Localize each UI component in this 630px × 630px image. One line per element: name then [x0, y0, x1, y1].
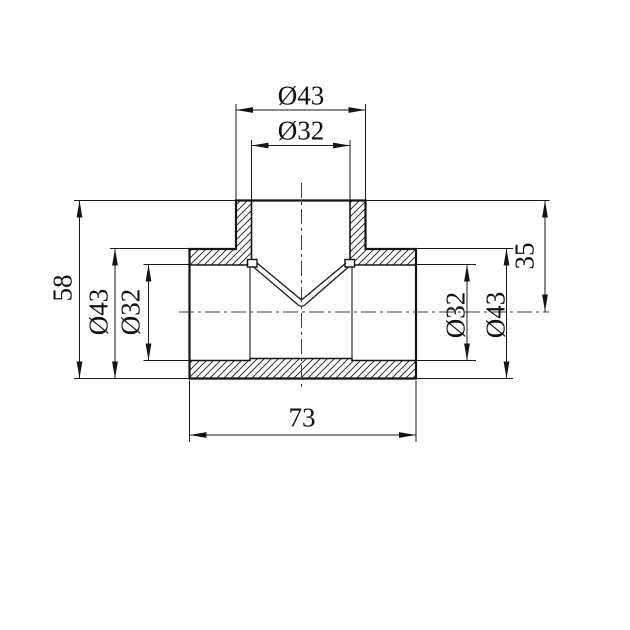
hatch-right-wall [350, 201, 416, 266]
dim-right-outer-diameter: Ø43 [481, 249, 511, 379]
dim-top-inner-diameter: Ø32 [252, 116, 351, 146]
tee-fitting-section-drawing: Ø43 Ø32 58 Ø43 Ø32 Ø32 Ø43 35 73 [0, 0, 630, 630]
right-notch [345, 260, 355, 268]
hatch-left-wall [190, 201, 252, 266]
hatch-bottom-wall [190, 359, 417, 379]
dimension-label: Ø32 [116, 289, 146, 336]
dim-left-outer-diameter: Ø43 [84, 249, 116, 379]
dimension-label: Ø43 [84, 289, 114, 336]
dim-right-inner-diameter: Ø32 [441, 265, 471, 361]
dim-overall-height: 58 [48, 201, 80, 379]
dim-left-inner-diameter: Ø32 [116, 265, 149, 361]
drawing-canvas: Ø43 Ø32 58 Ø43 Ø32 Ø32 Ø43 35 73 [0, 0, 630, 630]
dimension-label: Ø32 [441, 292, 471, 339]
dim-top-outer-diameter: Ø43 [236, 81, 366, 111]
section-hatching [190, 201, 417, 379]
dimension-label: Ø43 [278, 81, 325, 111]
left-notch [248, 260, 258, 268]
extension-lines [74, 104, 550, 442]
dim-branch-center-height: 35 [510, 201, 546, 312]
part-geometry [190, 201, 417, 379]
dimension-label: 73 [289, 403, 316, 433]
dimension-label: Ø43 [481, 292, 511, 339]
tee-outer-outline [190, 201, 417, 379]
bore-edges [190, 201, 417, 361]
dim-overall-length: 73 [190, 403, 417, 436]
dimension-label: 58 [48, 275, 78, 302]
dimension-label: Ø32 [278, 116, 325, 146]
dimension-label: 35 [510, 243, 540, 270]
